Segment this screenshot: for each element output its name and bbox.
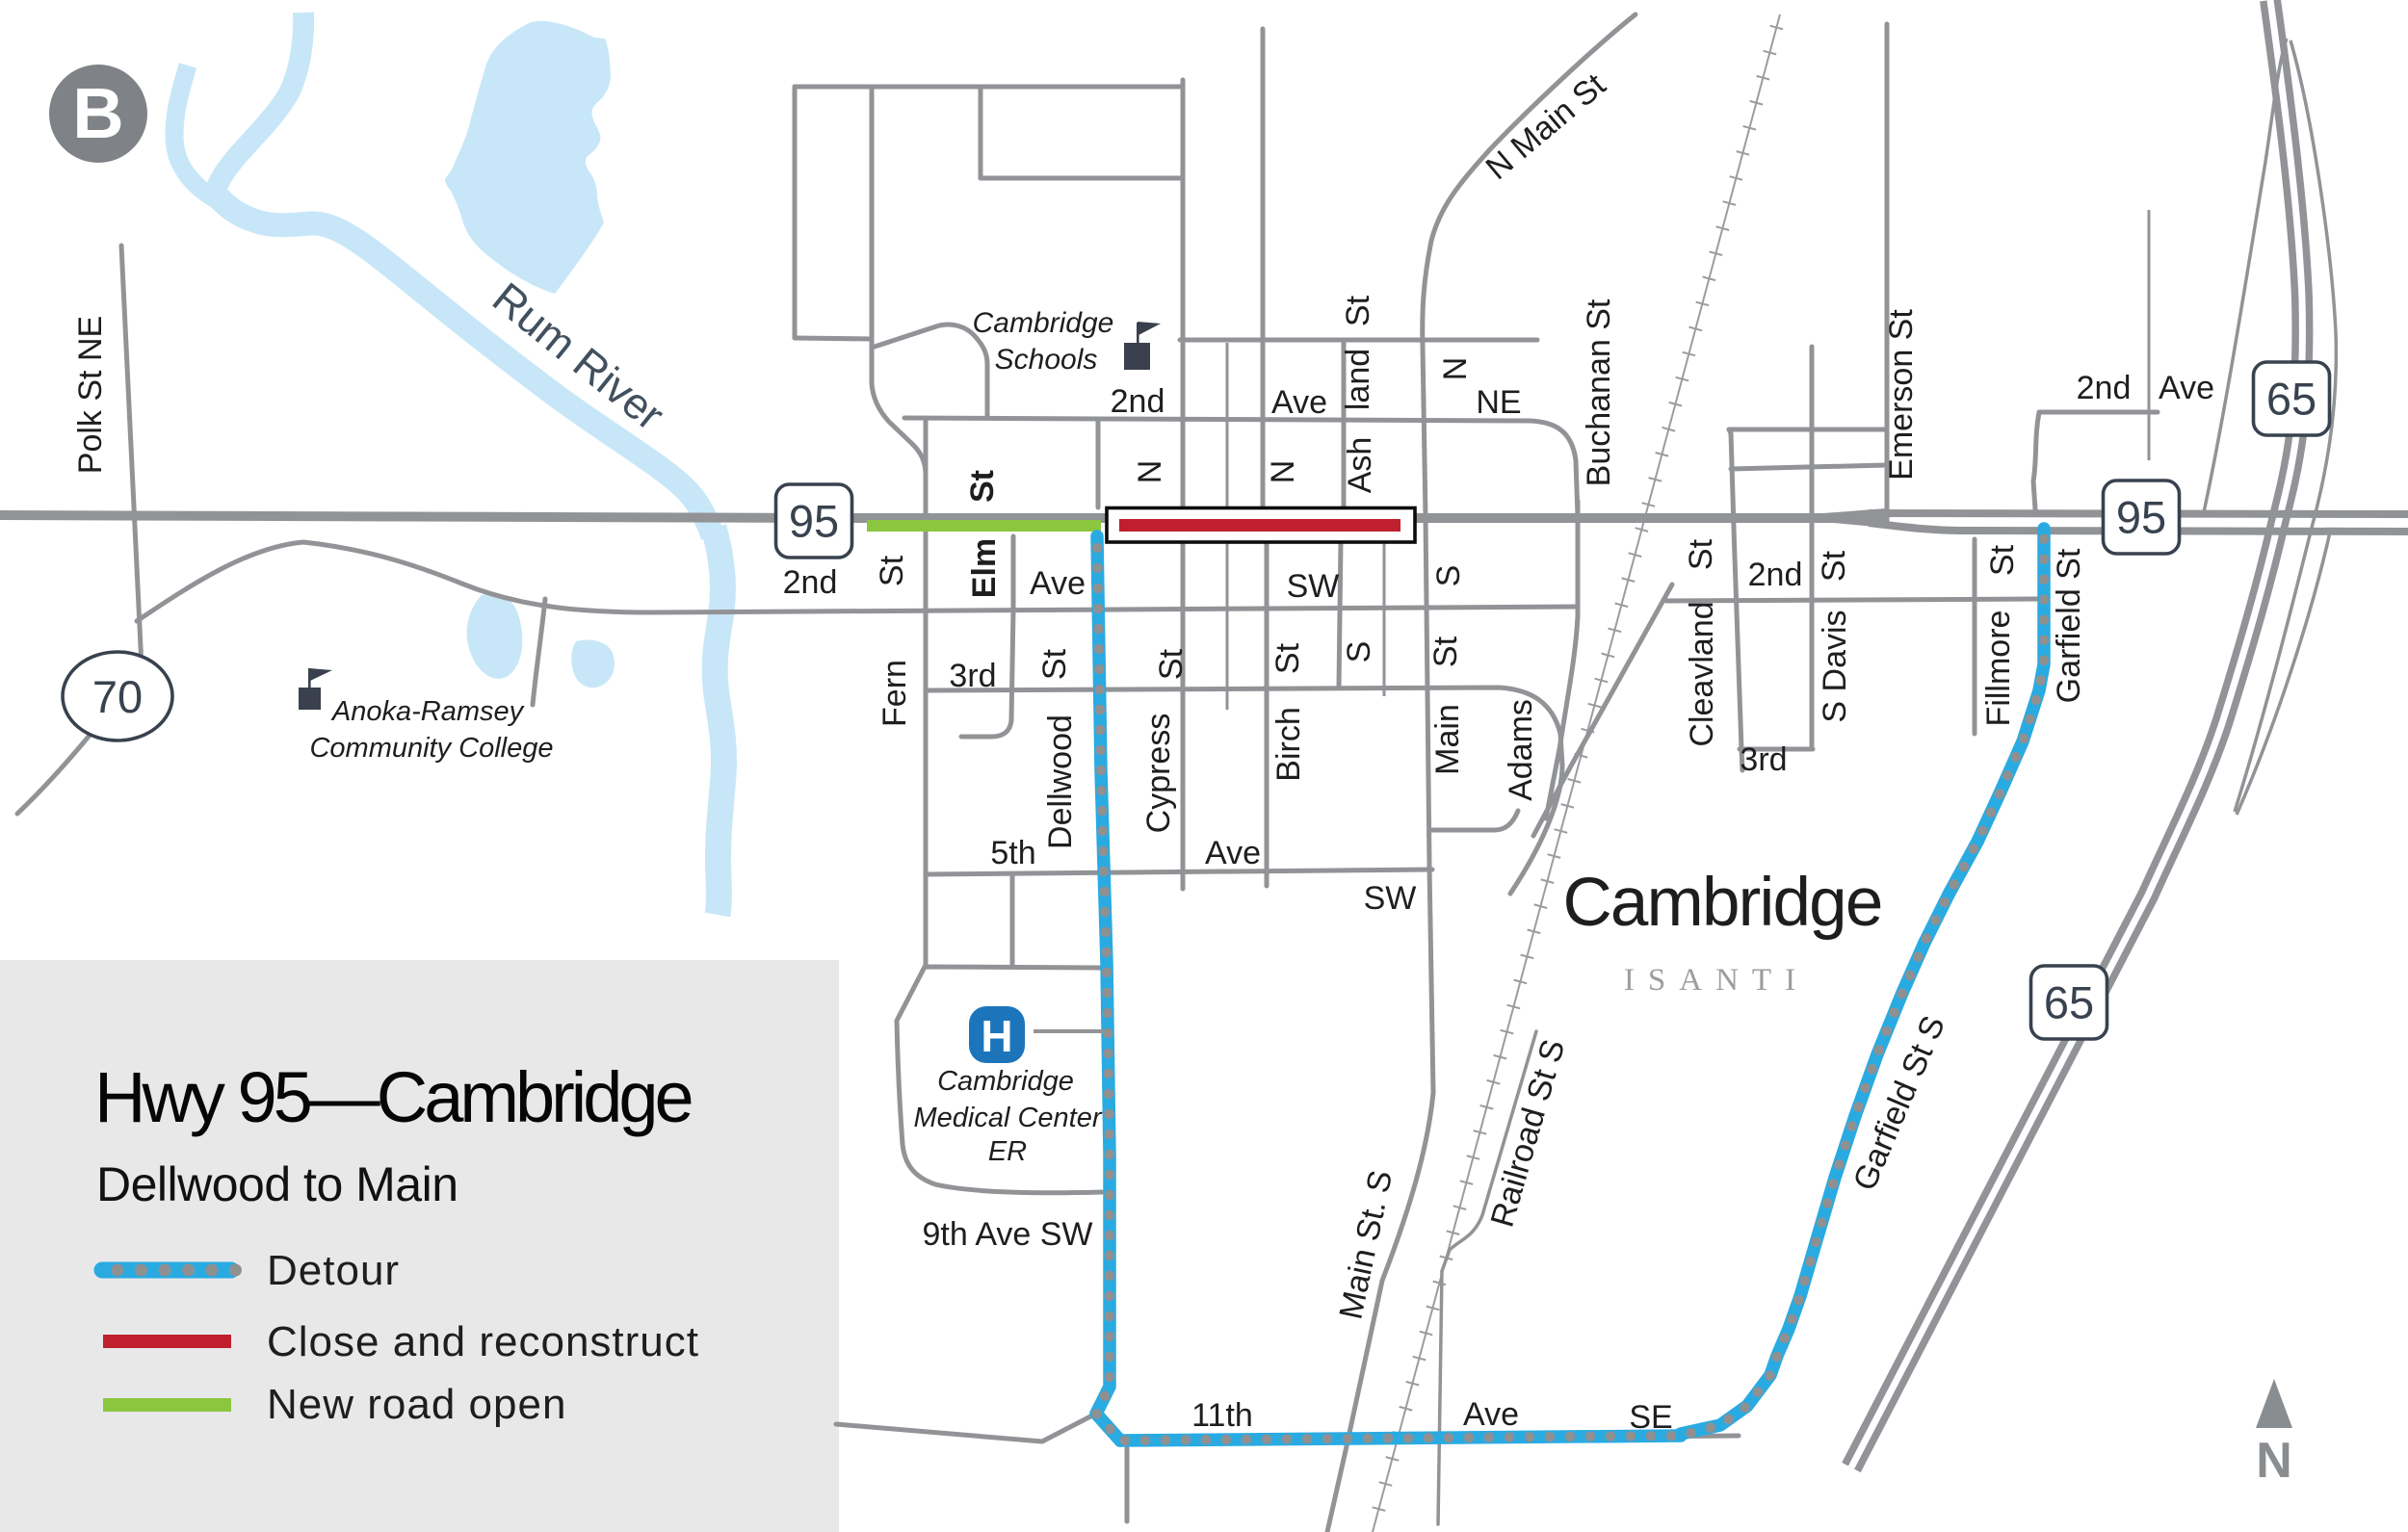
svg-text:ISANTI: ISANTI bbox=[1624, 963, 1809, 998]
svg-text:Polk St NE: Polk St NE bbox=[72, 316, 109, 474]
svg-text:SE: SE bbox=[1629, 1399, 1672, 1436]
svg-text:Cleavland: Cleavland bbox=[1684, 601, 1720, 746]
svg-text:Dellwood: Dellwood bbox=[1042, 714, 1079, 849]
svg-text:Ave: Ave bbox=[1271, 384, 1327, 421]
svg-text:St: St bbox=[964, 470, 1001, 503]
svg-text:Cambridge: Cambridge bbox=[1562, 865, 1881, 941]
svg-text:S Davis: S Davis bbox=[1817, 610, 1853, 722]
svg-text:Cambridge: Cambridge bbox=[937, 1066, 1074, 1097]
svg-text:St: St bbox=[1816, 550, 1852, 582]
svg-text:Medical Center: Medical Center bbox=[913, 1103, 1102, 1133]
svg-text:Elm: Elm bbox=[966, 538, 1003, 598]
svg-text:H: H bbox=[981, 1011, 1012, 1061]
svg-text:65: 65 bbox=[2044, 977, 2094, 1028]
svg-text:2nd: 2nd bbox=[1111, 383, 1165, 420]
svg-text:Hwy 95—Cambridge: Hwy 95—Cambridge bbox=[94, 1057, 692, 1137]
svg-text:2nd: 2nd bbox=[783, 564, 838, 601]
svg-text:St: St bbox=[1340, 295, 1376, 326]
svg-text:9th Ave SW: 9th Ave SW bbox=[922, 1216, 1092, 1253]
svg-text:New road open: New road open bbox=[267, 1381, 566, 1428]
svg-text:St: St bbox=[1427, 636, 1464, 667]
svg-text:Dellwood to Main: Dellwood to Main bbox=[96, 1157, 458, 1211]
svg-text:S: S bbox=[1430, 565, 1467, 587]
svg-text:Schools: Schools bbox=[995, 344, 1098, 376]
svg-text:N: N bbox=[1265, 460, 1301, 484]
svg-text:95: 95 bbox=[789, 496, 839, 547]
svg-text:Detour: Detour bbox=[267, 1247, 400, 1294]
svg-text:Ave: Ave bbox=[1463, 1396, 1519, 1433]
svg-text:Cypress: Cypress bbox=[1140, 714, 1177, 834]
svg-text:Ave: Ave bbox=[2159, 370, 2214, 406]
svg-text:Anoka-Ramsey: Anoka-Ramsey bbox=[330, 696, 525, 727]
svg-text:Buchanan St: Buchanan St bbox=[1581, 299, 1617, 486]
svg-text:70: 70 bbox=[92, 671, 143, 722]
svg-text:St: St bbox=[1153, 648, 1190, 680]
svg-text:land: land bbox=[1340, 349, 1376, 410]
svg-text:S: S bbox=[1341, 641, 1377, 663]
svg-text:Emerson St: Emerson St bbox=[1883, 309, 1920, 480]
svg-text:B: B bbox=[72, 73, 123, 153]
svg-text:95: 95 bbox=[2116, 492, 2166, 543]
svg-text:N: N bbox=[2256, 1433, 2292, 1489]
svg-text:5th: 5th bbox=[990, 835, 1035, 871]
svg-text:NE: NE bbox=[1476, 384, 1521, 421]
svg-text:St: St bbox=[1036, 648, 1073, 680]
svg-text:N: N bbox=[1132, 460, 1168, 484]
svg-text:St: St bbox=[1984, 544, 2021, 576]
svg-text:Cambridge: Cambridge bbox=[973, 307, 1114, 339]
svg-text:Birch: Birch bbox=[1270, 707, 1307, 781]
svg-text:St: St bbox=[1683, 538, 1719, 570]
svg-text:SW: SW bbox=[1364, 880, 1417, 917]
svg-text:N: N bbox=[1437, 357, 1474, 381]
svg-text:Fern: Fern bbox=[877, 660, 913, 727]
svg-text:Ash: Ash bbox=[1342, 437, 1378, 494]
svg-text:Adams: Adams bbox=[1503, 699, 1539, 801]
svg-text:Ave: Ave bbox=[1205, 835, 1261, 871]
svg-text:2nd: 2nd bbox=[1748, 557, 1803, 593]
svg-text:Fillmore: Fillmore bbox=[1980, 610, 2017, 727]
svg-text:3rd: 3rd bbox=[949, 658, 996, 694]
svg-text:Community College: Community College bbox=[309, 733, 553, 764]
svg-text:2nd: 2nd bbox=[2077, 370, 2132, 406]
svg-text:Garfield St: Garfield St bbox=[2051, 548, 2087, 703]
svg-text:Ave: Ave bbox=[1030, 565, 1086, 602]
svg-text:St: St bbox=[1269, 642, 1306, 674]
svg-text:SW: SW bbox=[1287, 568, 1340, 605]
svg-text:ER: ER bbox=[988, 1136, 1027, 1167]
svg-text:65: 65 bbox=[2266, 374, 2316, 425]
svg-text:Close and reconstruct: Close and reconstruct bbox=[267, 1318, 699, 1365]
svg-text:3rd: 3rd bbox=[1740, 741, 1787, 778]
svg-text:St: St bbox=[874, 555, 910, 586]
svg-text:Main: Main bbox=[1429, 704, 1466, 775]
svg-text:11th: 11th bbox=[1191, 1397, 1253, 1434]
